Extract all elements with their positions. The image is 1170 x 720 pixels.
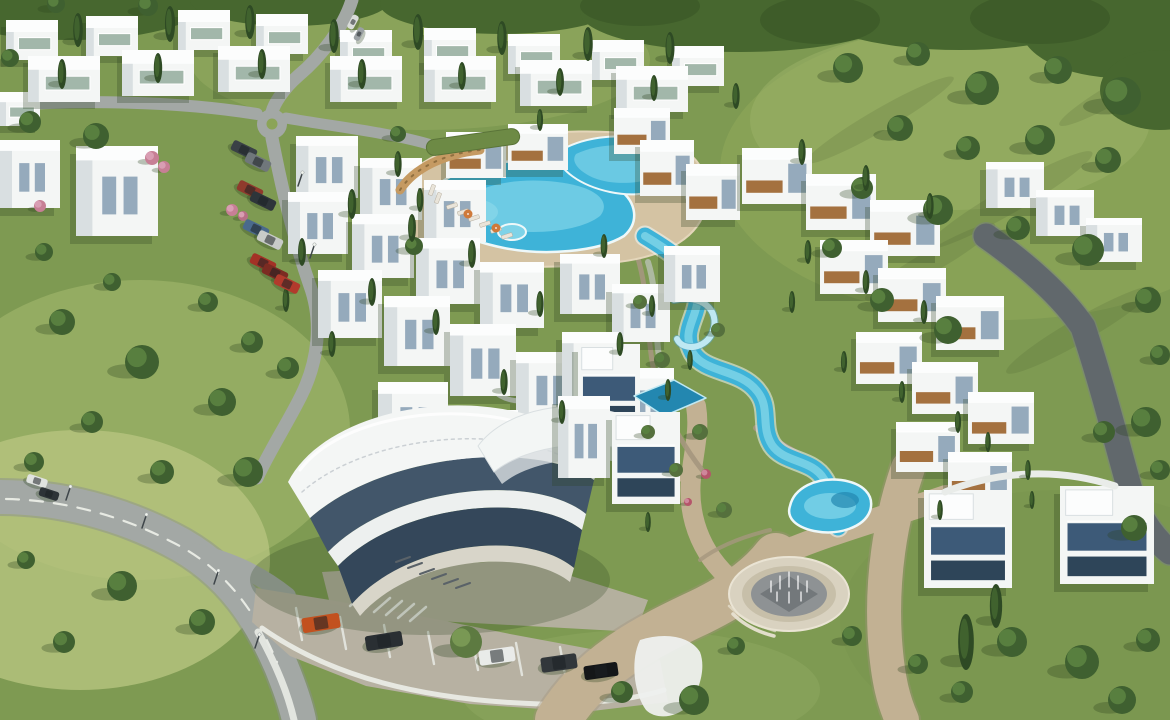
slide-pool-deep (831, 492, 859, 508)
glass-villa-building (918, 490, 1012, 596)
townhouse-building (963, 392, 1034, 451)
roundabout-island (267, 119, 278, 130)
apartment-building (282, 192, 348, 262)
glass-villa-building (606, 412, 680, 512)
apartment-building (658, 246, 720, 310)
pool-umbrella (492, 224, 501, 233)
pool-umbrella (464, 210, 473, 219)
resort-aerial-render (0, 0, 1170, 720)
apartment-building (378, 296, 450, 374)
townhouse-building (681, 164, 740, 227)
villa-building (515, 60, 592, 113)
apartment-building (0, 140, 60, 216)
scene-svg (0, 0, 1170, 720)
